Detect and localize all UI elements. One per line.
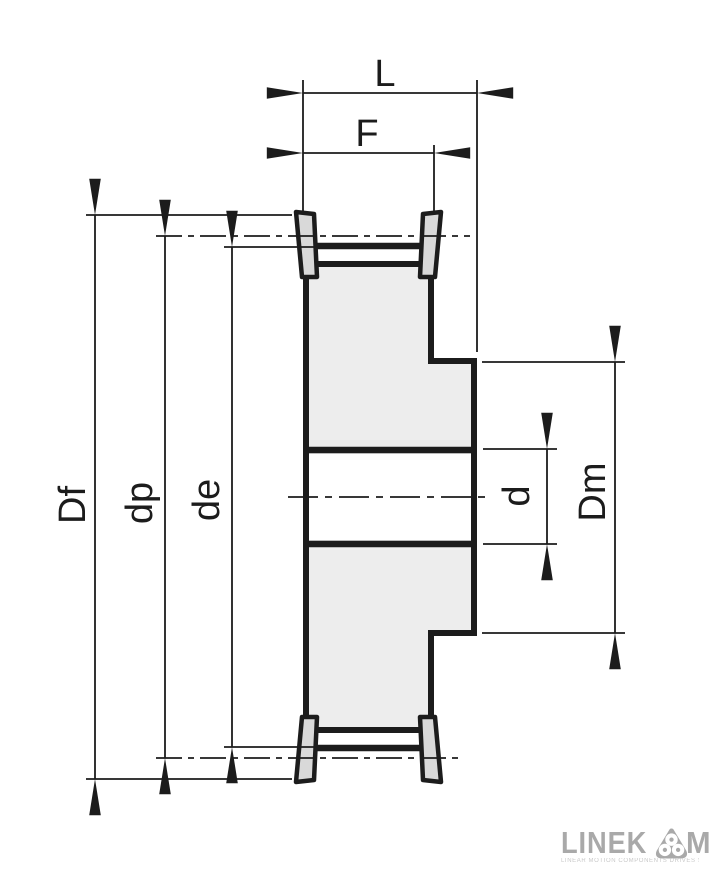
flange-top-right [420,212,441,277]
logo-text-left: LINEK [561,826,647,860]
label-outside-diameter: de [186,479,228,521]
pulley-dimension-drawing: L F Df dp de d Dm [0,0,712,881]
label-overall-width: L [374,53,395,95]
label-flange-diameter: Df [52,486,94,524]
drawing-page: L F Df dp de d Dm LINEK M LINEAR MOTION … [0,0,712,881]
logo-text-right: M [686,826,711,860]
label-belt-width: F [355,113,378,155]
label-hub-diameter: Dm [572,462,614,521]
flange-top-left [296,212,317,277]
linekom-logo: LINEK M LINEAR MOTION COMPONENTS DRIVES … [561,826,707,864]
label-pitch-diameter: dp [119,482,161,524]
flange-bottom-left [296,717,317,782]
label-bore-diameter: d [496,485,538,506]
three-pulleys-badge-icon [655,827,688,860]
flange-bottom-right [420,717,441,782]
logo-wordmark: LINEK M [561,826,707,860]
